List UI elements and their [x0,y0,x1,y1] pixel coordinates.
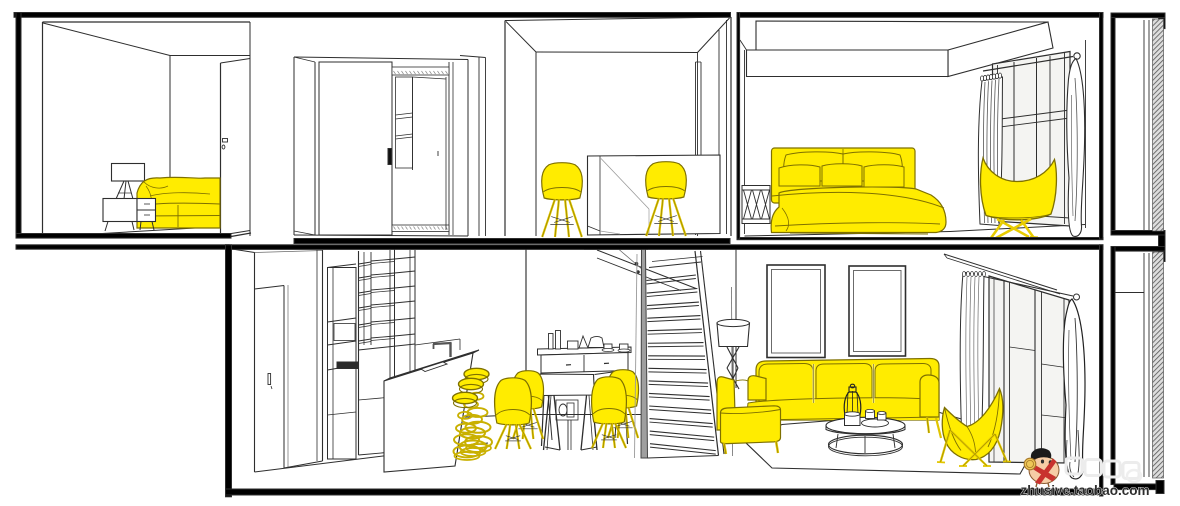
svg-text:zhusive.taobao.com: zhusive.taobao.com [1020,483,1149,498]
